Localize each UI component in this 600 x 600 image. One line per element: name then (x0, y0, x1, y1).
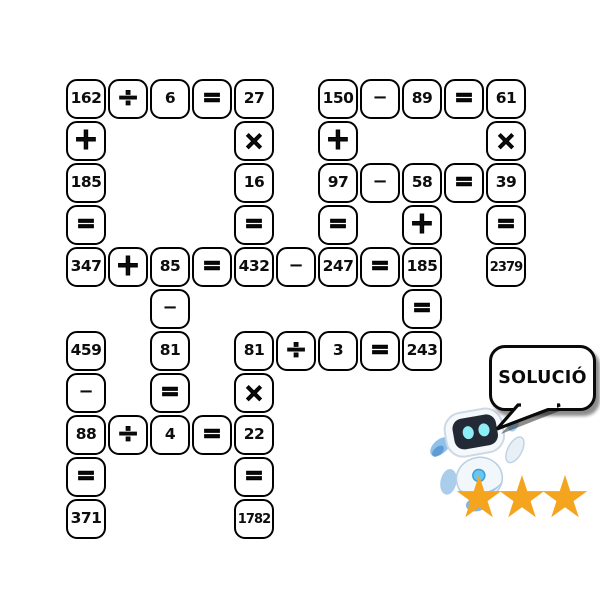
puzzle-cell-r9c2: ÷ (108, 415, 148, 455)
puzzle-cell-r1c3: 6 (150, 79, 190, 119)
puzzle-cell-r4c7: = (318, 205, 358, 245)
puzzle-cell-r1c11: 61 (486, 79, 526, 119)
puzzle-cell-r11c1: 371 (66, 499, 106, 539)
puzzle-cell-r3c7: 97 (318, 163, 358, 203)
star-rating-symbols: ★★★ (453, 463, 582, 531)
puzzle-cell-r1c5: 27 (234, 79, 274, 119)
puzzle-cell-r7c5: 81 (234, 331, 274, 371)
puzzle-cell-r1c9: 89 (402, 79, 442, 119)
puzzle-cell-r5c3: 85 (150, 247, 190, 287)
puzzle-cell-r2c7: + (318, 121, 358, 161)
puzzle-cell-r9c3: 4 (150, 415, 190, 455)
puzzle-cell-r9c5: 22 (234, 415, 274, 455)
puzzle-cell-r3c8: − (360, 163, 400, 203)
puzzle-cell-r3c11: 39 (486, 163, 526, 203)
puzzle-cell-r1c7: 150 (318, 79, 358, 119)
puzzle-cell-r1c4: = (192, 79, 232, 119)
puzzle-cell-r9c4: = (192, 415, 232, 455)
puzzle-cell-r7c1: 459 (66, 331, 106, 371)
solution-bubble-tail-icon (492, 403, 570, 437)
puzzle-cell-r5c2: + (108, 247, 148, 287)
puzzle-cell-r6c3: − (150, 289, 190, 329)
puzzle-cell-r3c5: 16 (234, 163, 274, 203)
puzzle-cell-r1c10: = (444, 79, 484, 119)
puzzle-cell-r5c6: − (276, 247, 316, 287)
puzzle-cell-r10c5: = (234, 457, 274, 497)
puzzle-cell-r1c1: 162 (66, 79, 106, 119)
puzzle-cell-r3c1: 185 (66, 163, 106, 203)
puzzle-cell-r8c3: = (150, 373, 190, 413)
puzzle-cell-r4c1: = (66, 205, 106, 245)
puzzle-cell-r8c1: − (66, 373, 106, 413)
puzzle-cell-r5c11: 2379 (486, 247, 526, 287)
puzzle-cell-r8c5: × (234, 373, 274, 413)
puzzle-cell-r4c5: = (234, 205, 274, 245)
puzzle-cell-r10c1: = (66, 457, 106, 497)
puzzle-cell-r11c5: 1782 (234, 499, 274, 539)
puzzle-cell-r7c6: ÷ (276, 331, 316, 371)
puzzle-cell-r1c8: − (360, 79, 400, 119)
puzzle-cell-r7c3: 81 (150, 331, 190, 371)
puzzle-cell-r7c7: 3 (318, 331, 358, 371)
star-rating: ★★★ (453, 468, 582, 526)
puzzle-cell-r3c10: = (444, 163, 484, 203)
puzzle-cell-r2c11: × (486, 121, 526, 161)
puzzle-cell-r5c7: 247 (318, 247, 358, 287)
solution-bubble[interactable]: SOLUCIÓ (489, 345, 596, 411)
puzzle-cell-r5c1: 347 (66, 247, 106, 287)
puzzle-cell-r5c8: = (360, 247, 400, 287)
puzzle-cell-r4c11: = (486, 205, 526, 245)
puzzle-cell-r5c5: 432 (234, 247, 274, 287)
puzzle-cell-r7c9: 243 (402, 331, 442, 371)
puzzle-cell-r6c9: = (402, 289, 442, 329)
puzzle-cell-r5c9: 185 (402, 247, 442, 287)
puzzle-cell-r5c4: = (192, 247, 232, 287)
puzzle-cell-r2c1: + (66, 121, 106, 161)
solution-bubble-label: SOLUCIÓ (498, 368, 587, 388)
puzzle-cell-r3c9: 58 (402, 163, 442, 203)
puzzle-cell-r1c2: ÷ (108, 79, 148, 119)
puzzle-cell-r7c8: = (360, 331, 400, 371)
puzzle-cell-r2c5: × (234, 121, 274, 161)
puzzle-cell-r4c9: + (402, 205, 442, 245)
puzzle-cell-r9c1: 88 (66, 415, 106, 455)
